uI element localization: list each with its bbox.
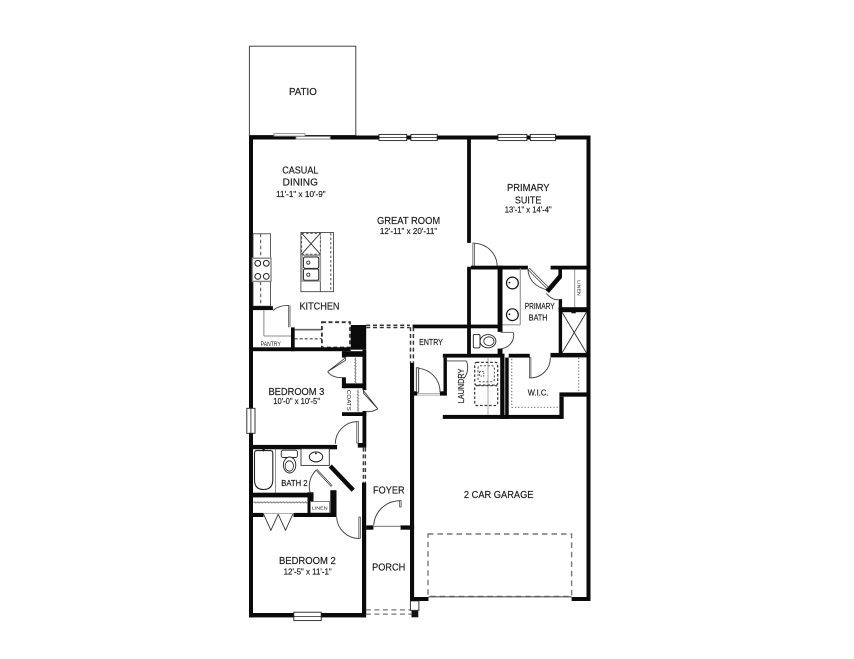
svg-text:12'-5" x 11'-1": 12'-5" x 11'-1"	[284, 568, 332, 577]
svg-text:BATH: BATH	[529, 312, 548, 322]
svg-text:PORCH: PORCH	[372, 562, 405, 573]
svg-text:COATS: COATS	[345, 390, 351, 412]
svg-text:11'-1" x 10'-9": 11'-1" x 10'-9"	[276, 190, 326, 199]
svg-text:PATIO: PATIO	[289, 87, 317, 98]
svg-text:PANTRY: PANTRY	[261, 342, 281, 348]
svg-text:GREAT ROOM: GREAT ROOM	[377, 216, 440, 227]
svg-text:DINING: DINING	[283, 178, 318, 189]
svg-text:FOYER: FOYER	[373, 486, 405, 497]
svg-text:12'-11" x 20'-11": 12'-11" x 20'-11"	[380, 227, 437, 236]
svg-text:W.I.C.: W.I.C.	[528, 388, 549, 398]
svg-text:PRIMARY: PRIMARY	[525, 301, 555, 311]
svg-text:2 CAR GARAGE: 2 CAR GARAGE	[464, 490, 534, 501]
svg-text:10'-0" x 10'-5": 10'-0" x 10'-5"	[273, 397, 320, 406]
svg-text:PRIMARY: PRIMARY	[507, 183, 550, 194]
svg-text:ENTRY: ENTRY	[419, 337, 443, 347]
svg-text:13'-1" x 14'-4": 13'-1" x 14'-4"	[505, 206, 552, 215]
svg-text:BEDROOM 2: BEDROOM 2	[279, 556, 336, 567]
svg-text:LINEN: LINEN	[312, 506, 328, 511]
svg-text:KITCHEN: KITCHEN	[299, 301, 339, 312]
svg-text:CASUAL: CASUAL	[282, 165, 318, 176]
svg-text:LAUNDRY: LAUNDRY	[456, 368, 466, 403]
svg-text:LINEN: LINEN	[576, 280, 582, 296]
svg-text:BATH 2: BATH 2	[281, 478, 308, 488]
